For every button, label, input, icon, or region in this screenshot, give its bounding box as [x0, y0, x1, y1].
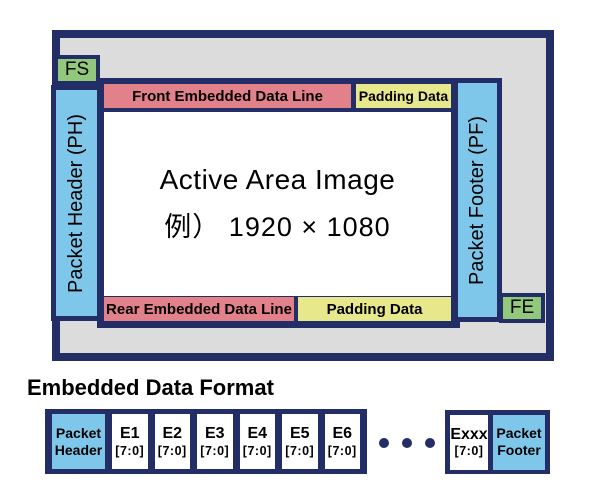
- front-embedded-data-bar: Front Embedded Data Line: [104, 84, 351, 108]
- packet-header-bar: Packet Header (PH): [51, 85, 102, 321]
- byte-bits: [7:0]: [285, 444, 314, 459]
- packet-header-cell-line2: Header: [55, 442, 102, 459]
- byte-name: E4: [247, 424, 267, 443]
- embedded-byte-cell-e5: E5 [7:0]: [282, 414, 318, 469]
- byte-bits: [7:0]: [328, 444, 357, 459]
- padding-data-bottom-bar: Padding Data: [298, 297, 451, 321]
- embedded-byte-cell-e2: E2 [7:0]: [155, 414, 191, 469]
- dot-icon: [379, 438, 389, 448]
- byte-bits: [7:0]: [158, 444, 187, 459]
- embedded-byte-cell-e6: E6 [7:0]: [325, 414, 361, 469]
- byte-bits: [7:0]: [455, 444, 484, 459]
- active-area-example: 例） 1920 × 1080: [164, 205, 390, 244]
- embedded-bytes-row: Packet Header E1 [7:0] E2 [7:0] E3 [7:0]…: [45, 409, 367, 474]
- packet-header-cell-line1: Packet: [56, 425, 101, 442]
- byte-name: E5: [290, 424, 310, 443]
- embedded-byte-cell-e1: E1 [7:0]: [112, 414, 148, 469]
- byte-name: E2: [162, 424, 182, 443]
- packet-format-diagram: Active Area Image 例） 1920 × 1080 Front E…: [0, 0, 600, 500]
- rear-embedded-data-bar: Rear Embedded Data Line: [104, 297, 294, 321]
- packet-footer-bar: Packet Footer (PF): [453, 78, 502, 322]
- frame-end-box: FE: [499, 293, 545, 323]
- byte-bits: [7:0]: [200, 444, 229, 459]
- packet-footer-label: Packet Footer (PF): [466, 116, 489, 285]
- embedded-data-format-heading: Embedded Data Format: [27, 375, 274, 401]
- byte-bits: [7:0]: [115, 444, 144, 459]
- byte-name: E3: [205, 424, 225, 443]
- padding-data-top-bar: Padding Data: [356, 84, 451, 108]
- dot-icon: [402, 438, 412, 448]
- active-area-title: Active Area Image: [160, 164, 396, 196]
- ellipsis-dots: [379, 438, 435, 448]
- packet-footer-cell-line1: Packet: [496, 425, 541, 442]
- frame-start-box: FS: [54, 55, 100, 85]
- byte-name: E6: [332, 424, 352, 443]
- byte-name: E1: [120, 424, 140, 443]
- dot-icon: [425, 438, 435, 448]
- embedded-byte-cell-e3: E3 [7:0]: [197, 414, 233, 469]
- active-area: Active Area Image 例） 1920 × 1080: [104, 112, 451, 296]
- packet-footer-cell-line2: Footer: [497, 442, 541, 459]
- embedded-byte-cell-e4: E4 [7:0]: [240, 414, 276, 469]
- embedded-byte-cell-exxx: Exxx [7:0]: [450, 415, 488, 470]
- packet-header-label: Packet Header (PH): [65, 114, 88, 293]
- byte-bits: [7:0]: [243, 444, 272, 459]
- byte-name: Exxx: [450, 425, 487, 444]
- packet-footer-cell: Packet Footer: [493, 415, 545, 470]
- embedded-bytes-row-tail: Exxx [7:0] Packet Footer: [445, 410, 550, 474]
- packet-header-cell: Packet Header: [52, 414, 105, 469]
